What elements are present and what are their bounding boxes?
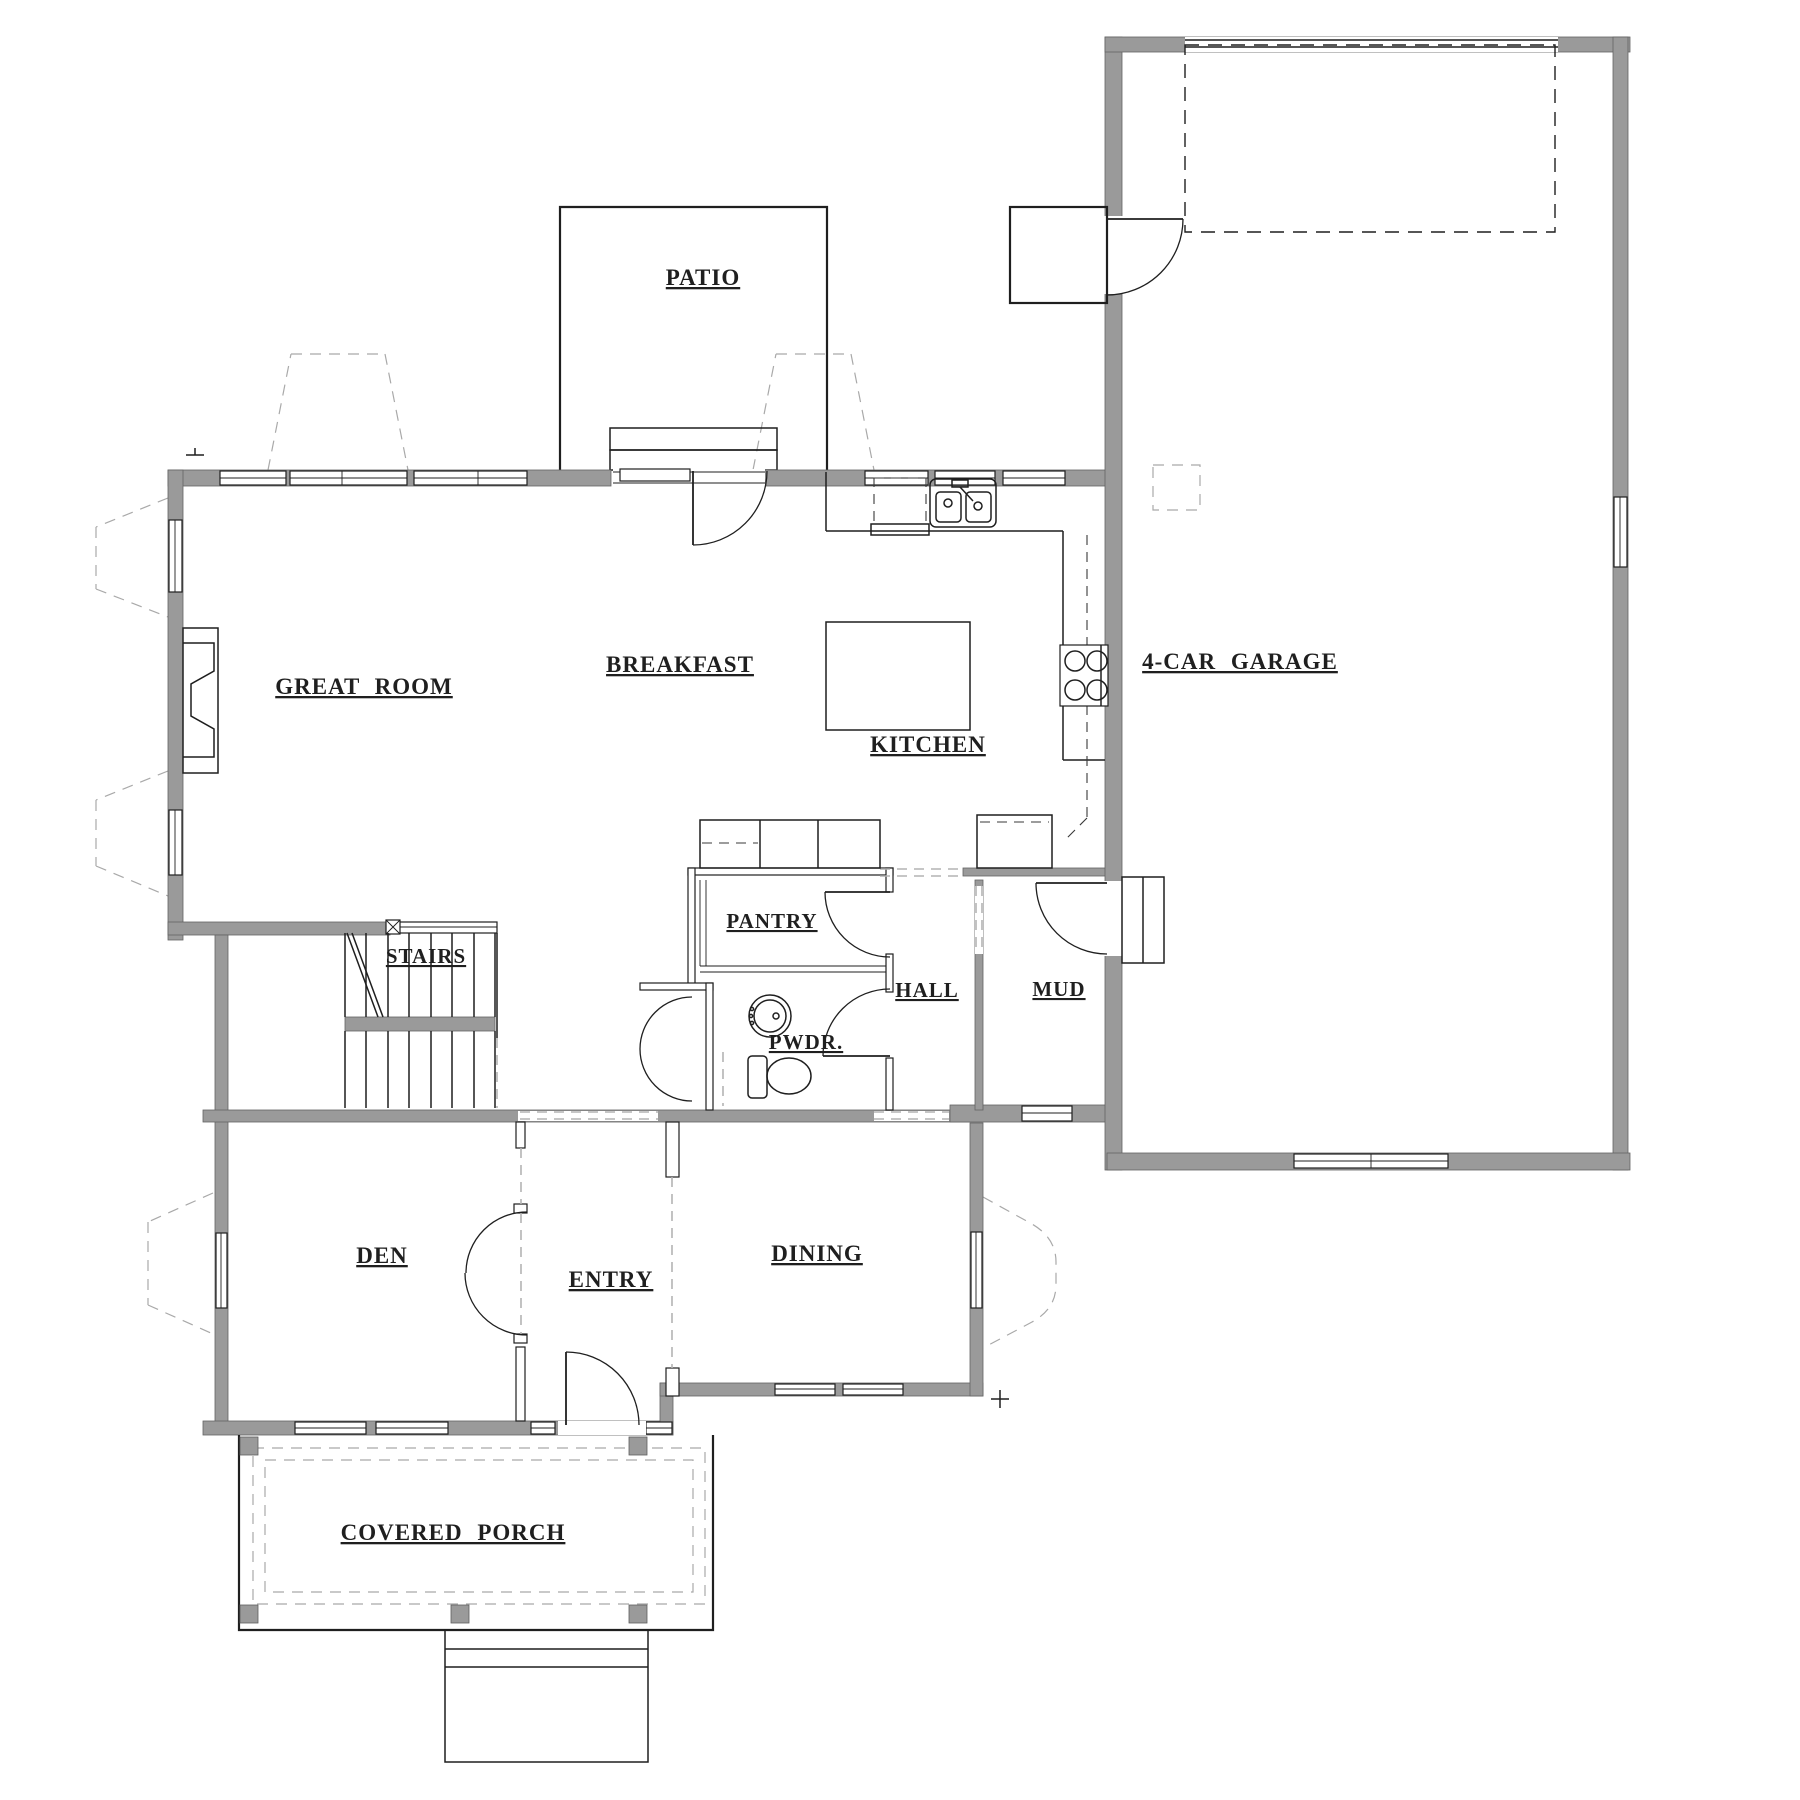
porch-post [240,1437,258,1455]
front-entry-door [558,1352,646,1435]
floor-plan-canvas: PATIO GREAT ROOM BREAKFAST KITCHEN 4-CAR… [0,0,1800,1800]
garage-door-open-dash [1185,45,1555,232]
porch-post [629,1605,647,1623]
toilet-icon [748,1056,811,1098]
room-label-great-room: GREAT ROOM [275,674,453,699]
mud-bench [977,815,1052,868]
porch-post [451,1605,469,1623]
room-label-stairs: STAIRS [386,944,466,968]
stove-icon [1060,645,1108,706]
patio-outline [560,207,827,470]
porch-post [629,1437,647,1455]
patio-door [613,469,767,545]
room-label-dining: DINING [771,1241,863,1266]
room-label-pwdr: PWDR. [769,1030,843,1054]
kitchen-island [826,622,970,730]
room-label-pantry: PANTRY [726,909,817,933]
room-label-hall: HALL [895,978,959,1002]
room-label-den: DEN [356,1243,408,1268]
room-label-entry: ENTRY [569,1267,654,1292]
roof-overhang-dashes [96,354,1056,1348]
floor-plan-svg: PATIO GREAT ROOM BREAKFAST KITCHEN 4-CAR… [0,0,1800,1800]
kitchen-counters [700,472,1108,868]
room-label-covered-porch: COVERED PORCH [341,1520,566,1545]
den-french-doors [465,1212,527,1335]
mud-garage-door [1036,877,1164,963]
room-label-garage: 4-CAR GARAGE [1142,649,1338,674]
covered-porch-structure [239,1435,713,1762]
garage-service-door [1010,207,1183,303]
garage-overhead-door [1153,37,1558,510]
room-label-patio: PATIO [666,265,740,290]
room-label-kitchen: KITCHEN [870,732,986,757]
fireplace-icon [183,628,218,773]
pantry-door [825,892,890,957]
equipment-pad-dash [1153,465,1200,510]
hall-closet-doors [640,997,692,1101]
porch-steps [445,1630,648,1762]
garage-stoop [1010,207,1107,303]
labels-layer: PATIO GREAT ROOM BREAKFAST KITCHEN 4-CAR… [275,265,1338,1545]
porch-post [240,1605,258,1623]
base-cabinets [700,820,880,868]
room-label-breakfast: BREAKFAST [606,652,754,677]
room-label-mud: MUD [1032,977,1085,1001]
